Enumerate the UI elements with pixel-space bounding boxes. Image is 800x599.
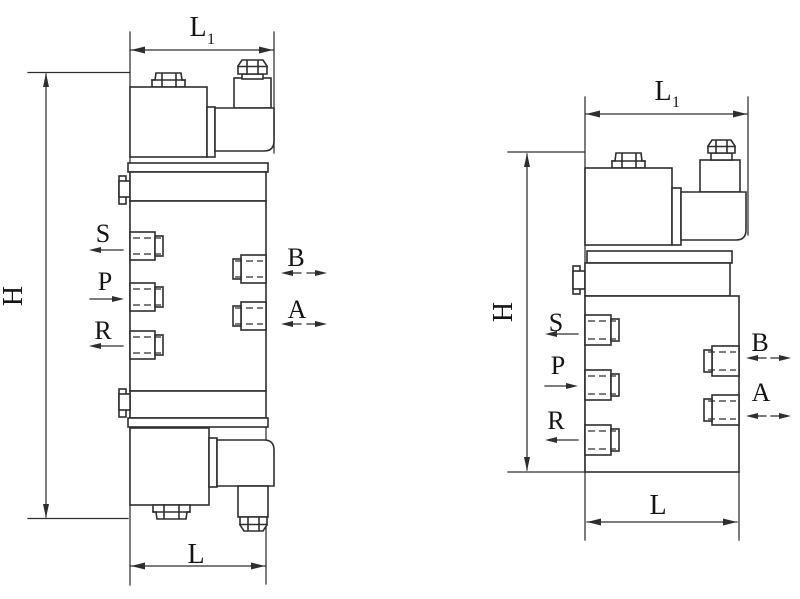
adapter-plate-bottom xyxy=(128,418,268,427)
view-single-solenoid: L 1 H L S P R B A xyxy=(488,76,791,540)
arrowhead xyxy=(251,563,265,570)
solenoid-coil xyxy=(130,87,207,157)
arrowhead xyxy=(587,519,601,526)
port-A xyxy=(704,395,739,425)
port-tip xyxy=(704,350,712,372)
dim-label-L: L xyxy=(187,539,204,570)
port-boss xyxy=(130,331,155,359)
arrowhead xyxy=(43,73,49,87)
port-A xyxy=(233,302,266,330)
connector-housing xyxy=(681,192,746,240)
connector-stem xyxy=(234,78,271,108)
spacer-block-top xyxy=(130,172,266,201)
port-boss xyxy=(130,232,155,260)
port-tip xyxy=(611,374,619,396)
port-tip xyxy=(155,287,163,307)
spacer-block-bottom xyxy=(130,391,266,418)
mounting-tab-top xyxy=(119,181,130,197)
port-tip xyxy=(704,399,712,421)
connector-flange xyxy=(672,188,681,245)
connector-flange xyxy=(209,438,217,487)
top-solenoid-assembly xyxy=(130,60,274,157)
port-boss xyxy=(712,346,739,376)
technical-drawing-page: L 1 H L S P R B A xyxy=(0,0,800,599)
b-arrowhead-right xyxy=(779,355,791,361)
adapter-plate xyxy=(587,251,732,263)
port-label-B: B xyxy=(751,328,768,357)
a-arrowhead-right xyxy=(315,321,327,327)
a-arrowhead-right xyxy=(779,413,791,419)
port-label-A: A xyxy=(288,295,307,324)
arrowhead xyxy=(723,519,737,526)
port-label-B: B xyxy=(287,243,304,272)
mounting-tab-bottom xyxy=(119,394,130,410)
arrowhead xyxy=(43,504,49,518)
dim-label-L1: L xyxy=(189,12,206,43)
solenoid-assembly xyxy=(585,140,746,245)
a-arrowhead-left xyxy=(746,413,758,419)
port-S xyxy=(585,315,619,345)
connector-stem xyxy=(238,486,268,517)
port-tip xyxy=(233,259,241,279)
port-label-S: S xyxy=(549,308,563,337)
view-double-solenoid: L 1 H L S P R B A xyxy=(0,12,327,585)
port-boss xyxy=(712,395,739,425)
connector-housing xyxy=(217,440,274,486)
arrowhead xyxy=(733,111,747,118)
port-boss xyxy=(585,315,611,345)
port-boss xyxy=(241,255,266,283)
adapter-plate-top xyxy=(128,163,268,172)
arrowhead xyxy=(524,153,530,167)
dim-label-H: H xyxy=(0,286,29,306)
dim-label-L1-subscript: 1 xyxy=(207,31,215,48)
port-tip xyxy=(155,335,163,355)
port-B xyxy=(233,255,266,283)
bottom-solenoid-assembly xyxy=(130,428,274,531)
valve-dimension-drawing: L 1 H L S P R B A xyxy=(0,0,800,599)
port-S xyxy=(130,232,163,260)
p-arrowhead-right xyxy=(112,296,124,302)
p-arrowhead-right xyxy=(566,383,578,389)
port-R xyxy=(130,331,163,359)
b-arrowhead-right xyxy=(315,270,327,276)
port-label-P: P xyxy=(551,351,565,380)
arrowhead xyxy=(524,457,530,471)
mounting-tab xyxy=(573,271,585,289)
port-P xyxy=(585,370,619,400)
port-tip xyxy=(155,236,163,256)
port-boss xyxy=(585,370,611,400)
port-boss xyxy=(130,283,155,311)
port-boss xyxy=(585,425,611,455)
port-label-R: R xyxy=(94,316,112,345)
dim-label-L1: L xyxy=(654,76,671,107)
arrowhead xyxy=(259,47,273,54)
cable-gland-neck xyxy=(711,153,732,160)
dim-label-L: L xyxy=(649,490,666,521)
port-tip xyxy=(611,429,619,451)
port-label-A: A xyxy=(752,378,771,407)
port-label-S: S xyxy=(96,219,110,248)
port-tip xyxy=(611,319,619,341)
connector-housing xyxy=(215,108,274,151)
port-tip xyxy=(233,306,241,326)
solenoid-coil xyxy=(130,428,209,505)
arrowhead xyxy=(131,47,145,54)
solenoid-coil xyxy=(585,168,672,245)
dim-label-H: H xyxy=(488,302,519,322)
r-arrowhead-left xyxy=(545,437,557,443)
port-R xyxy=(585,425,619,455)
port-boss xyxy=(241,302,266,330)
port-P xyxy=(130,283,163,311)
port-B xyxy=(704,346,739,376)
port-label-P: P xyxy=(98,267,112,296)
arrowhead xyxy=(586,111,600,118)
spacer-block xyxy=(585,263,730,296)
dim-label-L1-subscript: 1 xyxy=(672,94,680,111)
arrowhead xyxy=(131,563,145,570)
connector-stem xyxy=(700,160,740,192)
connector-flange xyxy=(207,107,215,157)
port-label-R: R xyxy=(547,406,565,435)
